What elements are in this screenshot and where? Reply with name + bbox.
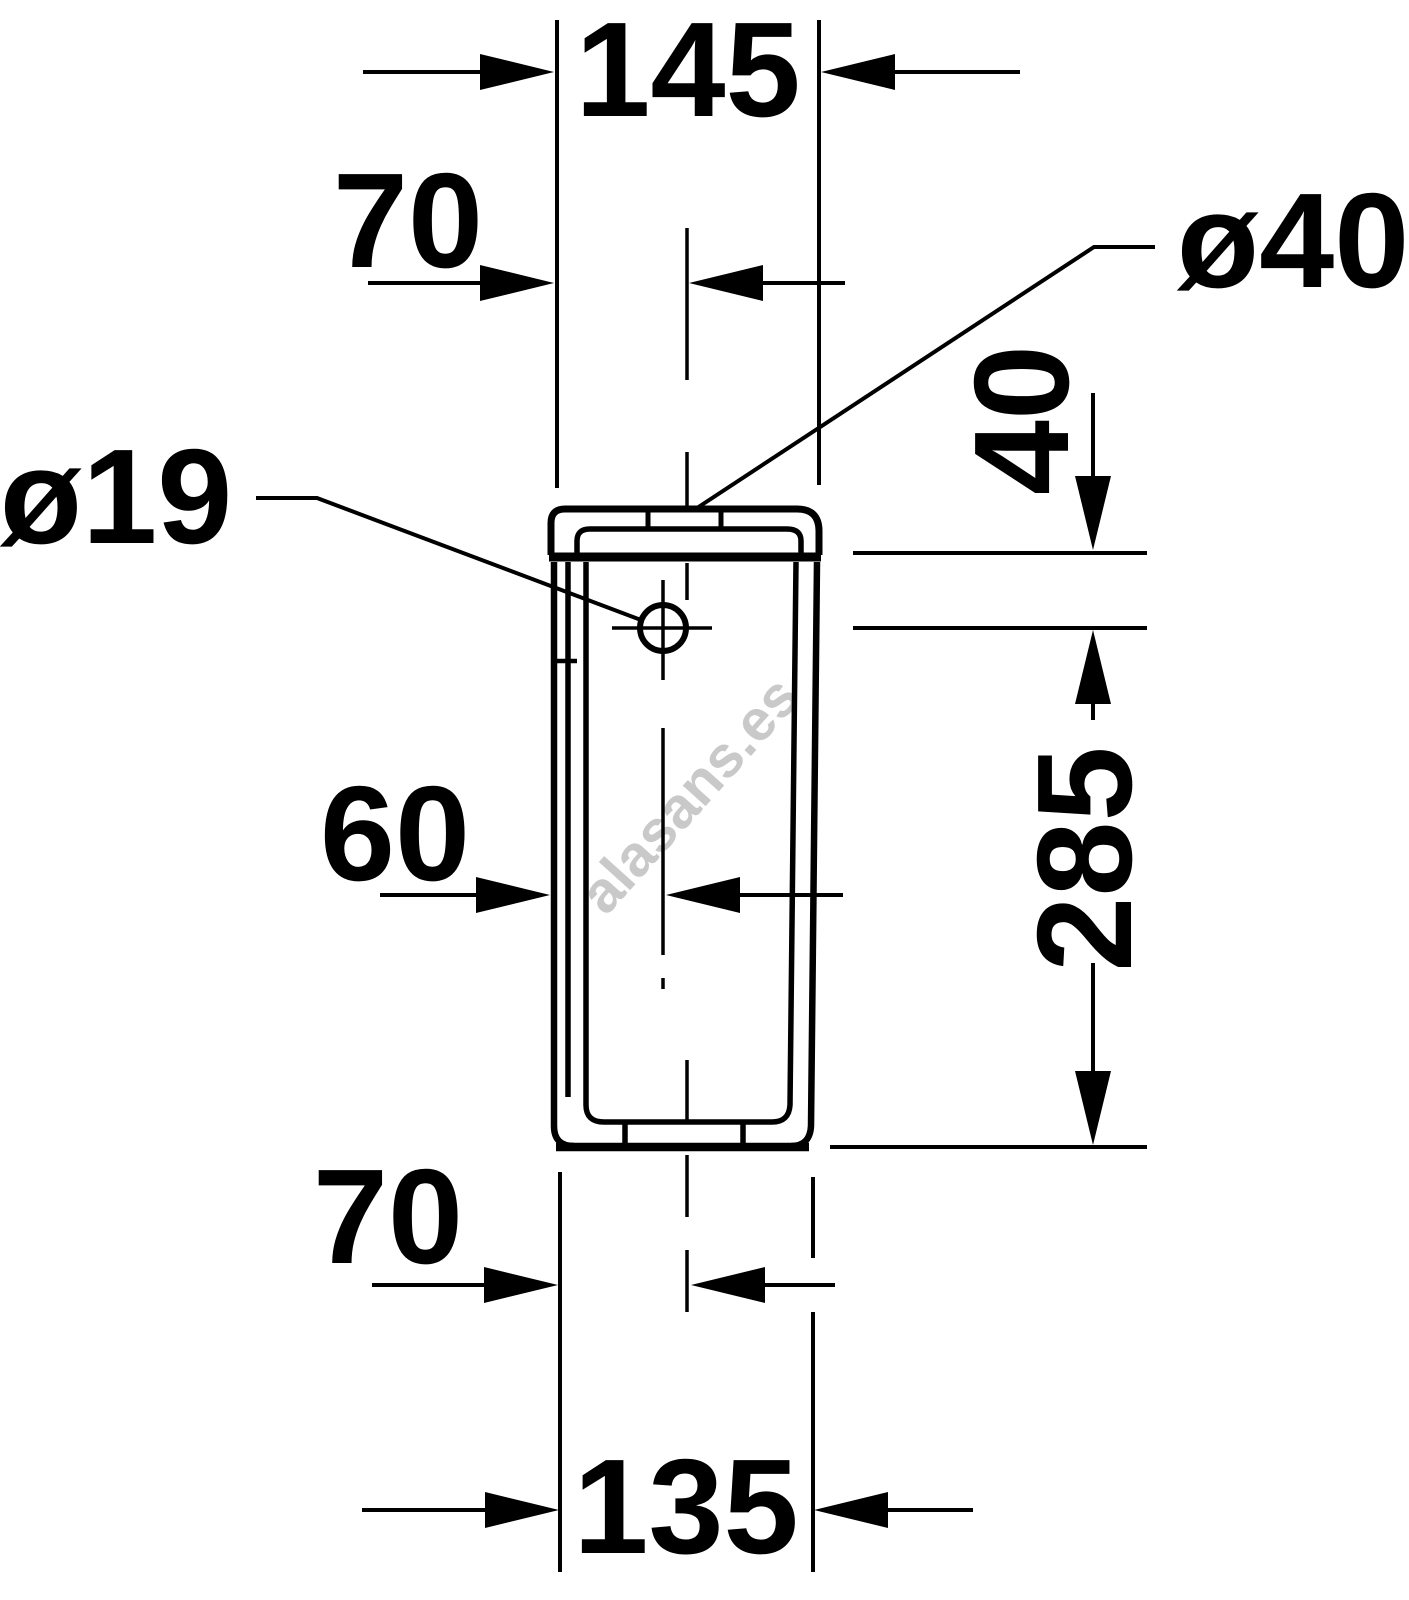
watermark-text: alasans.es	[567, 664, 812, 926]
lid-outline	[551, 509, 819, 555]
dim-label-lid-hole-diameter: ø40	[1177, 165, 1409, 316]
arrowhead-285-up	[1075, 630, 1111, 704]
arrowhead-70top-left	[480, 265, 554, 301]
dim-label-lid-width: 145	[575, 0, 800, 145]
arrowhead-70bottom-right	[691, 1267, 765, 1303]
lid-inner-line	[577, 529, 801, 555]
dim-label-base-width: 135	[573, 1431, 798, 1582]
dim-label-inlet-offset-bottom: 70	[313, 1141, 463, 1292]
drawing-canvas: alasans.es	[0, 0, 1409, 1600]
dim-label-side-hole-diameter: ø19	[0, 421, 232, 572]
watermark: alasans.es	[567, 664, 812, 926]
tank-left-wall-outer	[554, 562, 574, 1146]
tank-foot-ticks	[625, 1122, 743, 1143]
arrowhead-70bottom-left	[484, 1267, 558, 1303]
dim-label-side-hole-to-base: 285	[1009, 746, 1160, 971]
arrowhead-285-down	[1075, 1071, 1111, 1145]
dim-label-inlet-offset-top: 70	[333, 145, 483, 296]
arrowhead-145-right	[821, 54, 895, 90]
arrowhead-70top-right	[689, 265, 763, 301]
arrowhead-60-right	[666, 877, 740, 913]
arrowhead-145-left	[480, 54, 554, 90]
cistern-dimension-drawing: alasans.es	[0, 0, 1409, 1600]
arrowhead-60-left	[476, 877, 550, 913]
arrowhead-135-left	[485, 1492, 559, 1528]
arrowhead-135-right	[814, 1492, 888, 1528]
dim-label-side-hole-offset: 60	[320, 758, 470, 909]
tank-left-wall-inner	[586, 562, 604, 1122]
tank-right-wall-inner	[772, 562, 796, 1122]
dim-label-lid-to-side-hole: 40	[946, 345, 1097, 495]
